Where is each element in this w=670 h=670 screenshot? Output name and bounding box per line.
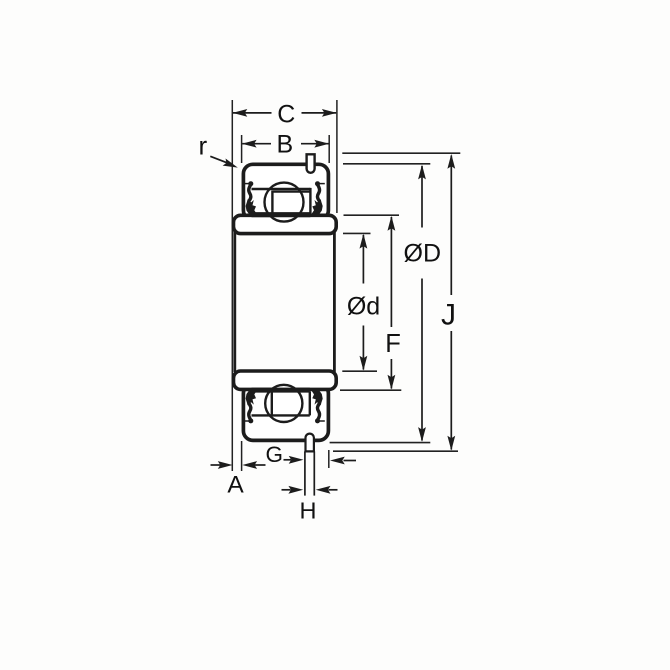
svg-text:F: F (385, 330, 401, 358)
svg-text:r: r (199, 131, 208, 161)
svg-text:B: B (276, 131, 293, 159)
svg-text:G: G (266, 442, 284, 467)
svg-text:J: J (441, 299, 456, 332)
svg-text:A: A (227, 472, 244, 499)
svg-text:ØD: ØD (404, 239, 442, 267)
svg-text:Ød: Ød (347, 292, 380, 320)
svg-text:C: C (277, 100, 295, 128)
svg-text:H: H (300, 498, 317, 524)
